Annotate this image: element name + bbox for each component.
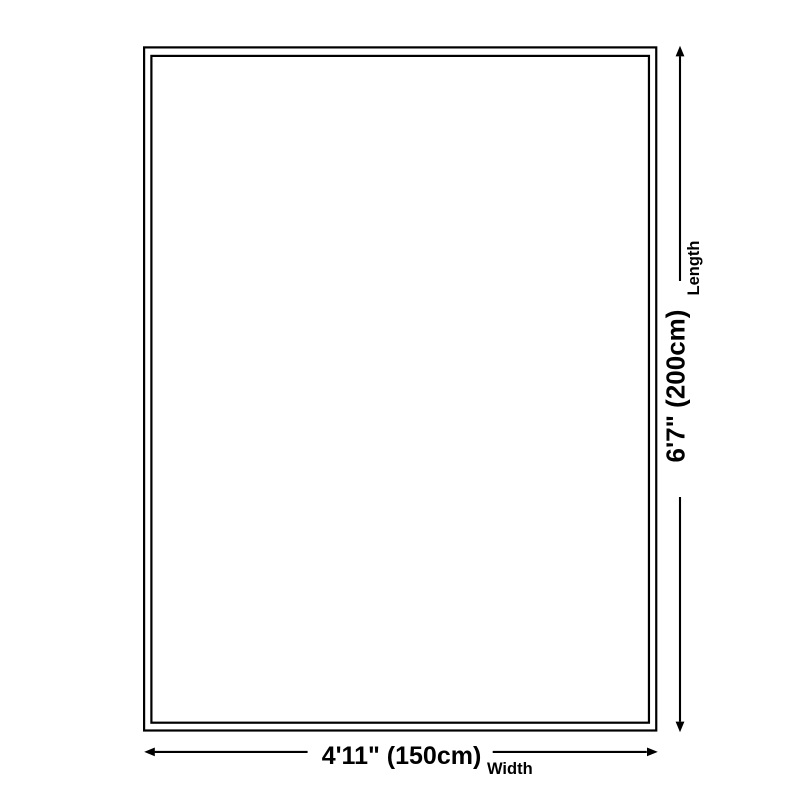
svg-text:Length: Length — [685, 241, 703, 296]
svg-text:Width: Width — [487, 760, 533, 778]
svg-text:4'11" (150cm): 4'11" (150cm) — [322, 742, 482, 770]
svg-text:6'7" (200cm): 6'7" (200cm) — [661, 310, 691, 463]
